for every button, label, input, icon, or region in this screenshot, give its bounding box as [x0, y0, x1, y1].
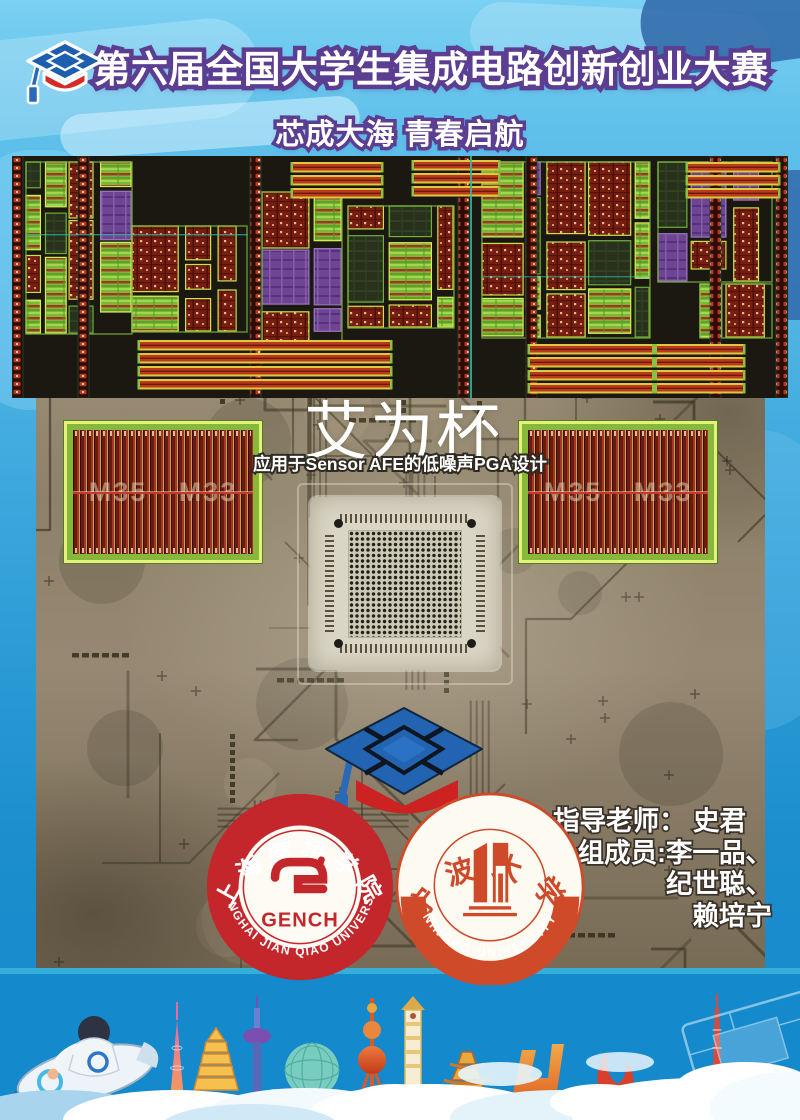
seal-shanghai-jianqiao: 上海建桥学院 SHANGHAI JIAN QIAO UNIVERSITY GEN…	[204, 789, 396, 985]
project-subtitle: 应用于Sensor AFE的低噪声PGA设计 应用于Sensor AFE的低噪声…	[150, 451, 650, 476]
seal-ningbo-university: 宁波大学 NINGBO UNIVERSITY	[394, 789, 586, 985]
seal-left-gench: GENCH	[261, 909, 339, 931]
poster-slogan: 芯成大海 青春启航 芯成大海 青春启航	[100, 116, 700, 154]
bga-ball-grid	[348, 530, 462, 638]
block-label: M33	[634, 477, 693, 508]
seal-right-building	[474, 843, 487, 903]
block-label: M35	[89, 477, 148, 508]
chip-package	[310, 497, 500, 670]
capacitor-stripes: M35 M33	[73, 430, 253, 554]
block-label: M33	[179, 477, 238, 508]
ic-layout-band	[12, 156, 788, 398]
poster-root: 第六届全国大学生集成电路创新创业大赛 第六届全国大学生集成电路创新创业大赛 芯成…	[0, 0, 800, 1120]
poster-title: 第六届全国大学生集成电路创新创业大赛 第六届全国大学生集成电路创新创业大赛	[88, 42, 774, 98]
poster-title-text: 第六届全国大学生集成电路创新创业大赛	[94, 49, 769, 90]
capacitor-array-left: M35 M33	[64, 421, 262, 563]
city-skyline-footer	[0, 968, 800, 1120]
competition-logo-icon	[22, 38, 106, 112]
block-label: M35	[544, 477, 603, 508]
